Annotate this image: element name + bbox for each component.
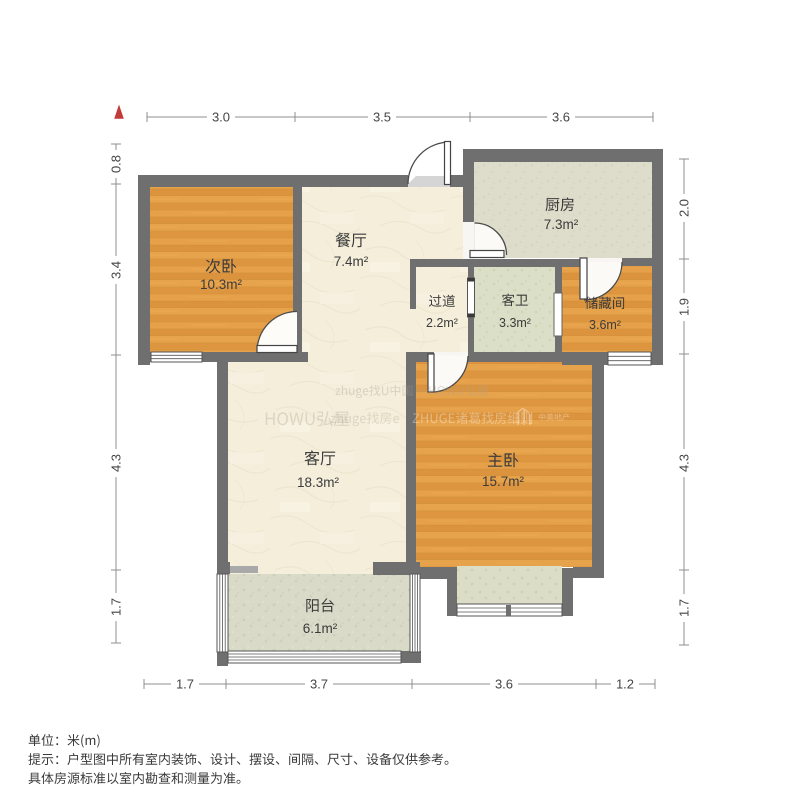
svg-text:3.5: 3.5 [373, 110, 391, 125]
svg-text:4.3: 4.3 [109, 454, 124, 472]
svg-text:15.7m²: 15.7m² [482, 474, 525, 489]
svg-text:2.0: 2.0 [677, 199, 692, 217]
svg-text:1.7: 1.7 [677, 599, 692, 617]
svg-text:7.4m²: 7.4m² [334, 254, 369, 269]
svg-text:1.2: 1.2 [616, 677, 634, 692]
svg-text:3.6m²: 3.6m² [589, 318, 621, 332]
svg-text:7.3m²: 7.3m² [544, 217, 579, 232]
svg-text:1.7: 1.7 [109, 598, 124, 616]
svg-text:2.2m²: 2.2m² [426, 316, 458, 330]
svg-text:4.3: 4.3 [677, 454, 692, 472]
svg-text:10.3m²: 10.3m² [200, 277, 243, 292]
svg-text:1.7: 1.7 [176, 677, 194, 692]
svg-text:1.9: 1.9 [677, 298, 692, 316]
svg-text:0.8: 0.8 [109, 155, 124, 173]
svg-text:3.6: 3.6 [552, 110, 570, 125]
svg-text:6.1m²: 6.1m² [303, 621, 338, 636]
svg-text:3.3m²: 3.3m² [499, 316, 531, 330]
svg-text:3.0: 3.0 [212, 110, 230, 125]
svg-text:18.3m²: 18.3m² [297, 475, 340, 490]
svg-text:3.4: 3.4 [109, 261, 124, 279]
svg-text:3.7: 3.7 [310, 677, 328, 692]
svg-text:3.6: 3.6 [495, 677, 513, 692]
